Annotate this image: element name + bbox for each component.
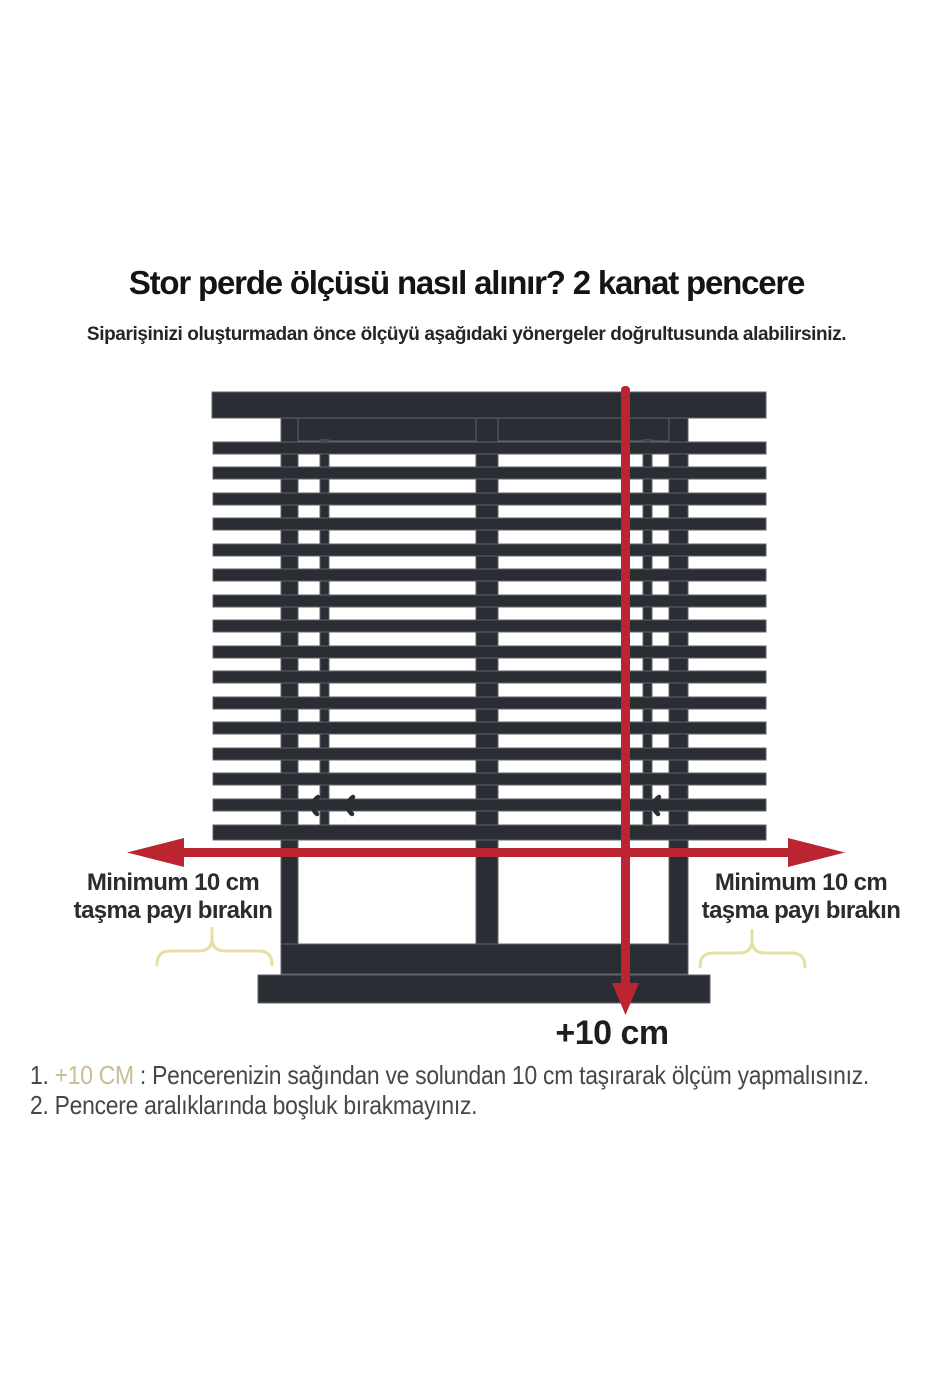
blind-slat (213, 748, 766, 760)
note-line-1: 1. +10 CM : Pencerenizin sağından ve sol… (30, 1060, 928, 1090)
measurement-diagram (0, 0, 933, 1400)
note-2-number: 2. (30, 1090, 49, 1120)
blind-slat (213, 544, 766, 556)
blind-slat (213, 442, 766, 454)
blind-slat (213, 620, 766, 632)
blind-slat (213, 569, 766, 581)
height-arrow-shaft (621, 386, 630, 987)
right-overhang-label-line2: taşma payı bırakın (676, 897, 926, 925)
left-overhang-label-line1: Minimum 10 cm (48, 869, 298, 897)
window-frame (258, 418, 710, 1003)
left-overhang-brace (157, 927, 272, 965)
blind-headrail (212, 392, 766, 418)
blind-slat (213, 697, 766, 709)
blind-slats (213, 442, 766, 811)
blind-slat (213, 773, 766, 785)
page-subtitle: Siparişinizi oluşturmadan önce ölçüyü aş… (0, 324, 933, 346)
blind-slat (213, 493, 766, 505)
window-sill (258, 975, 710, 1003)
blind-slat (213, 671, 766, 683)
instruction-notes: 1. +10 CM : Pencerenizin sağından ve sol… (30, 1060, 928, 1120)
width-arrow-shaft (172, 848, 790, 857)
height-extra-label: +10 cm (512, 1014, 712, 1053)
blind-slat (213, 646, 766, 658)
note-line-2: 2. Pencere aralıklarında boşluk bırakmay… (30, 1090, 928, 1120)
width-arrow-right-head (788, 838, 845, 867)
blind-slat (213, 722, 766, 734)
width-arrow-left-head (127, 838, 184, 867)
note-1-highlight: +10 CM (55, 1060, 134, 1090)
blind-slat (213, 467, 766, 479)
right-overhang-label-line1: Minimum 10 cm (676, 869, 926, 897)
note-1-number: 1. (30, 1060, 49, 1090)
left-overhang-label: Minimum 10 cm taşma payı bırakın (48, 869, 298, 925)
left-overhang-label-line2: taşma payı bırakın (48, 897, 298, 925)
note-1-text: : Pencerenizin sağından ve solundan 10 c… (134, 1060, 869, 1090)
page-title: Stor perde ölçüsü nasıl alınır? 2 kanat … (0, 264, 933, 302)
note-2-text: Pencere aralıklarında boşluk bırakmayını… (49, 1090, 478, 1120)
right-overhang-label: Minimum 10 cm taşma payı bırakın (676, 869, 926, 925)
right-overhang-brace (700, 929, 805, 967)
blind-slat (213, 799, 766, 811)
blind-bottom-rail (213, 825, 766, 840)
blind-slat (213, 595, 766, 607)
blind-slat (213, 518, 766, 530)
